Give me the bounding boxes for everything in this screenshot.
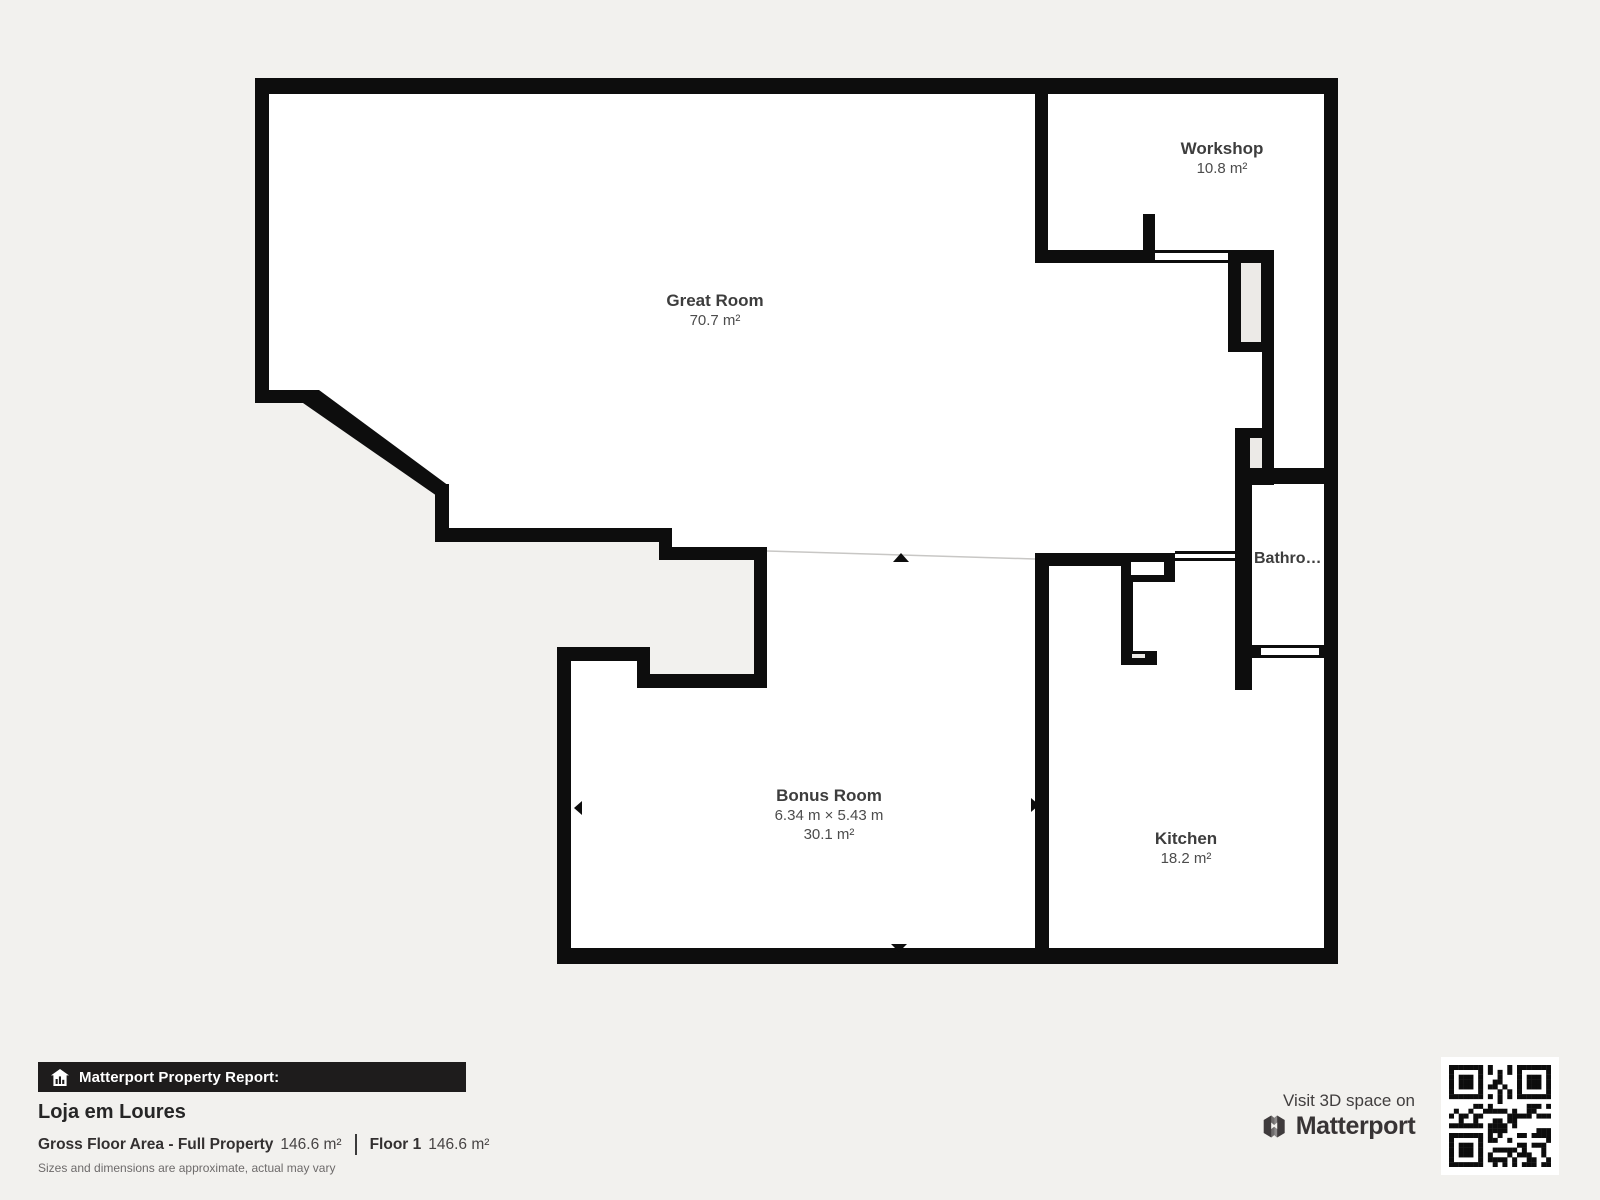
visit-3d-text: Visit 3D space on <box>1283 1091 1415 1111</box>
property-report-page: Great Room 70.7 m² Workshop 10.8 m² Bath… <box>0 0 1600 1200</box>
room-area: 18.2 m² <box>1155 849 1217 868</box>
report-badge-bar: Matterport Property Report: <box>38 1062 466 1092</box>
matterport-logo: Matterport <box>1261 1112 1416 1141</box>
room-label-great-room: Great Room 70.7 m² <box>666 291 763 330</box>
disclaimer-text: Sizes and dimensions are approximate, ac… <box>38 1161 335 1175</box>
bathroom-bottom-door <box>1261 648 1319 655</box>
report-badge-label: Matterport Property Report: <box>79 1069 279 1086</box>
qr-code <box>1449 1065 1551 1167</box>
room-title: Workshop <box>1181 139 1264 159</box>
room-area: 10.8 m² <box>1181 159 1264 178</box>
room-title: Great Room <box>666 291 763 311</box>
house-chart-icon <box>51 1069 69 1086</box>
property-name: Loja em Loures <box>38 1101 186 1124</box>
gross-area-label: Gross Floor Area - Full Property <box>38 1136 273 1154</box>
area-summary: Gross Floor Area - Full Property 146.6 m… <box>38 1134 489 1155</box>
room-label-kitchen: Kitchen 18.2 m² <box>1155 829 1217 868</box>
gross-area-value: 146.6 m² <box>280 1136 341 1154</box>
kitchen-pocket-door <box>1131 562 1164 575</box>
summary-divider <box>355 1134 357 1155</box>
bathroom-entry-door <box>1175 551 1235 554</box>
room-label-workshop: Workshop 10.8 m² <box>1181 139 1264 178</box>
matterport-wordmark: Matterport <box>1296 1112 1416 1141</box>
workshop-door <box>1155 250 1231 253</box>
floorplan-canvas <box>0 0 1600 1200</box>
room-title: Kitchen <box>1155 829 1217 849</box>
room-area: 70.7 m² <box>666 311 763 330</box>
matterport-logo-icon <box>1261 1113 1288 1140</box>
room-dimensions: 6.34 m × 5.43 m <box>775 806 884 825</box>
room-title: Bonus Room <box>775 786 884 806</box>
room-label-bathroom: Bathro… <box>1254 550 1322 568</box>
floor-value: 146.6 m² <box>428 1136 489 1154</box>
qr-card <box>1441 1057 1559 1175</box>
room-label-bonus-room: Bonus Room 6.34 m × 5.43 m 30.1 m² <box>775 786 884 844</box>
room-area: 30.1 m² <box>775 825 884 844</box>
floor-label: Floor 1 <box>370 1136 422 1154</box>
